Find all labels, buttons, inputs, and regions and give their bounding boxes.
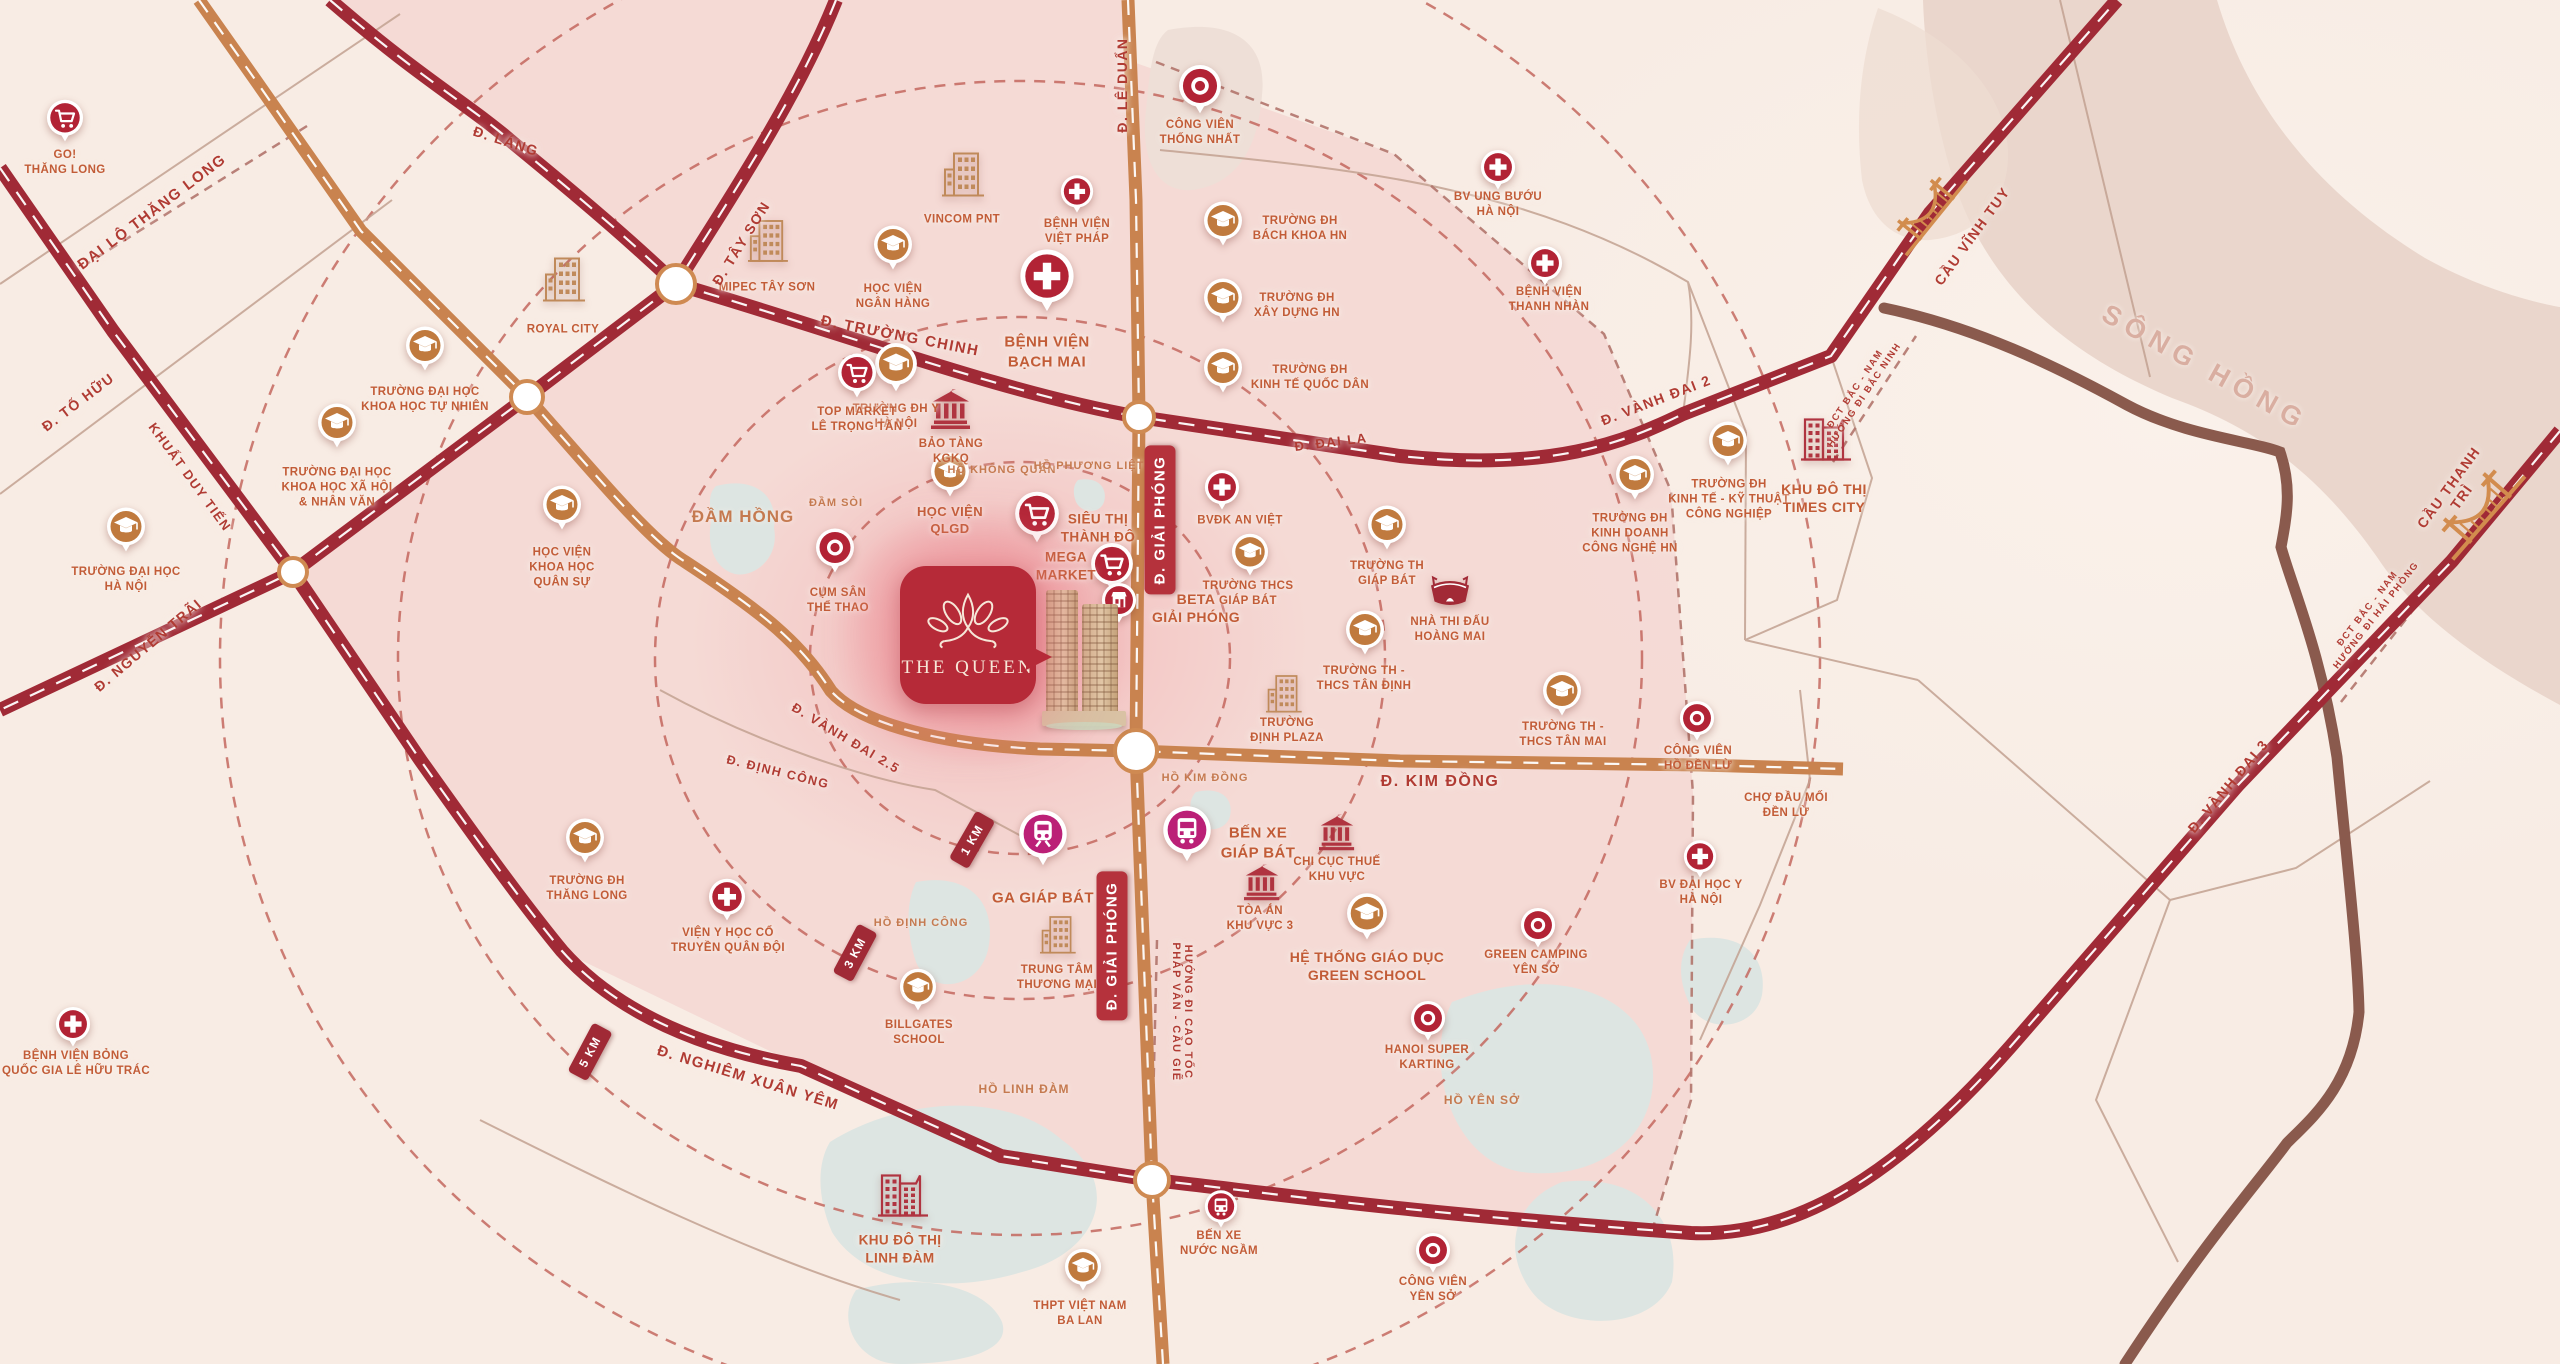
school-icon	[1203, 201, 1243, 247]
khu-do-thi-linh-dam-marker[interactable]	[872, 1166, 932, 1231]
bus-icon	[1162, 805, 1212, 863]
water-label-dam-soi: ĐẦM SÒI	[809, 497, 863, 509]
the-queen-building-render	[1042, 582, 1126, 730]
landscape	[1046, 722, 1122, 730]
truong-dh-kinh-te-quoc-dan-marker[interactable]	[1203, 348, 1243, 399]
truong-thcs-giap-bat-marker[interactable]	[1230, 531, 1270, 582]
truong-th-giap-bat-label: TRƯỜNG TH GIÁP BÁT	[1350, 559, 1424, 589]
water-label-ho-dinh-cong: HỒ ĐỊNH CÔNG	[874, 917, 969, 929]
truong-th-thcs-tan-mai-marker[interactable]	[1542, 671, 1582, 722]
truong-th-thcs-tan-mai-label: TRƯỜNG TH - THCS TÂN MAI	[1519, 720, 1606, 750]
toa-an-khu-vuc-3-marker[interactable]	[1239, 861, 1285, 908]
park-icon	[1415, 1232, 1451, 1273]
school-icon	[1615, 455, 1655, 501]
park-icon	[1178, 64, 1222, 115]
truong-dh-xay-dung-hn-marker[interactable]	[1203, 278, 1243, 329]
benh-vien-bach-mai-marker[interactable]	[1027, 267, 1067, 318]
school-icon	[873, 225, 913, 271]
riverside-road	[1884, 308, 2359, 1364]
train-icon	[1018, 809, 1068, 867]
hospital-icon	[55, 1006, 91, 1047]
truong-dh-kinh-doanh-cong-nghe-hn-marker[interactable]	[1615, 455, 1655, 506]
the-queen-callout[interactable]: THE QUEEN	[900, 566, 1036, 704]
benh-vien-thanh-nhan-label: BỆNH VIỆN THANH NHÀN	[1509, 285, 1590, 315]
hospital-icon	[1060, 174, 1094, 213]
building-icon	[1261, 671, 1305, 719]
ben-xe-giap-bat-label: BẾN XE GIÁP BÁT	[1221, 824, 1296, 863]
citybuilding-icon	[872, 1166, 932, 1226]
road-label-d-kim-dong: Đ. KIM ĐỒNG	[1381, 773, 1500, 791]
cong-vien-ho-den-lu-marker[interactable]	[1677, 696, 1717, 747]
cong-vien-yen-so-marker[interactable]	[1413, 1228, 1453, 1279]
truong-dai-hoc-ha-noi-label: TRƯỜNG ĐẠI HỌC HÀ NỘI	[71, 565, 180, 595]
hospital-icon	[708, 878, 746, 922]
hoc-vien-qlgd-label: HỌC VIỆN QLGD	[917, 504, 983, 538]
bank-icon	[1241, 865, 1282, 903]
project-name: THE QUEEN	[901, 657, 1034, 679]
building-icon	[1035, 912, 1079, 960]
bank-icon	[1316, 815, 1357, 853]
billgates-school-label: BILLGATES SCHOOL	[885, 1018, 953, 1048]
school-icon	[899, 968, 937, 1012]
stadium-icon	[1426, 572, 1474, 612]
chi-cuc-thue-khu-vuc-marker[interactable]	[1314, 811, 1360, 858]
water-label-ho-linh-dam: HỒ LINH ĐÀM	[979, 1082, 1070, 1096]
green-camping-yen-so-marker[interactable]	[1518, 903, 1558, 954]
school-icon	[405, 326, 445, 372]
vincom-pnt-label: VINCOM PNT	[924, 213, 1000, 228]
cum-san-the-thao-marker[interactable]	[815, 528, 855, 579]
bv-dai-hoc-y-ha-noi-marker[interactable]	[1680, 833, 1720, 884]
hanoi-super-karting-marker[interactable]	[1408, 996, 1448, 1047]
truong-dh-bach-khoa-hn-marker[interactable]	[1203, 201, 1243, 252]
busred-icon	[1204, 1189, 1238, 1228]
cong-vien-ho-den-lu-label: CÔNG VIÊN HỒ ĐỀN LỪ	[1664, 744, 1732, 774]
mega-market-label: MEGA MARKET	[1036, 548, 1096, 583]
trung-tam-thuong-mai-label: TRUNG TÂM THƯƠNG MẠI	[1017, 963, 1097, 993]
tower-left	[1046, 590, 1078, 714]
benh-vien-bach-mai-label: BỆNH VIỆN BẠCH MAI	[1004, 333, 1089, 372]
school-icon	[317, 403, 357, 449]
park-icon	[1679, 700, 1715, 741]
cong-vien-thong-nhat-marker[interactable]	[1180, 69, 1220, 120]
hoc-vien-ngan-hang-marker[interactable]	[873, 225, 913, 276]
benh-vien-thanh-nhan-marker[interactable]	[1525, 241, 1565, 292]
water-label-ho-phuong-liet: HỒ PHƯƠNG LIỆT	[1034, 460, 1145, 472]
mipec-tay-son-label: MIPEC TÂY SƠN	[719, 281, 816, 296]
truong-dai-hoc-khoa-hoc-tu-nhien-label: TRƯỜNG ĐẠI HỌC KHOA HỌC TỰ NHIÊN	[361, 385, 489, 415]
hanoi-super-karting-label: HANOI SUPER KARTING	[1385, 1043, 1469, 1073]
school-icon	[1708, 421, 1748, 467]
ben-xe-nuoc-ngam-label: BẾN XE NƯỚC NGẦM	[1180, 1229, 1258, 1259]
truong-dinh-plaza-label: TRƯỜNG ĐỊNH PLAZA	[1250, 716, 1324, 746]
hospital-icon	[1683, 839, 1717, 878]
truong-th-thcs-tan-dinh-marker[interactable]	[1345, 610, 1385, 661]
hospital-icon	[1204, 469, 1240, 510]
truong-dai-hoc-ha-noi-marker[interactable]	[106, 507, 146, 558]
bvdk-an-viet-label: BVĐK AN VIỆT	[1197, 514, 1283, 529]
park-icon	[1410, 1000, 1446, 1041]
ga-giap-bat-label: GA GIÁP BÁT	[992, 888, 1094, 908]
go-thang-long-marker[interactable]	[45, 97, 85, 148]
cart-icon	[837, 353, 877, 399]
sieu-thi-thanh-do-label: SIÊU THỊ THÀNH ĐÔ	[1061, 510, 1135, 545]
cong-vien-thong-nhat-label: CÔNG VIÊN THỐNG NHẤT	[1160, 118, 1241, 148]
nha-thi-dau-hoang-mai-marker[interactable]	[1426, 572, 1474, 617]
vien-y-hoc-co-truyen-quan-doi-label: VIỆN Y HỌC CỔ TRUYỀN QUÂN ĐỘI	[671, 926, 785, 956]
khu-do-thi-times-city-label: KHU ĐÔ THỊ TIMES CITY	[1781, 480, 1867, 516]
benh-vien-bong-quoc-gia-le-huu-trac-marker[interactable]	[53, 1002, 93, 1053]
school-icon	[1542, 671, 1582, 717]
truong-dinh-plaza-marker[interactable]	[1257, 663, 1309, 724]
school-icon	[874, 342, 918, 393]
truong-dh-kinh-te-ky-thuat-cong-nghiep-marker[interactable]	[1708, 421, 1748, 472]
go-thang-long-label: GO! THĂNG LONG	[24, 148, 105, 178]
cum-san-the-thao-label: CỤM SÂN THỂ THAO	[807, 586, 869, 616]
truong-dai-hoc-khoa-hoc-tu-nhien-marker[interactable]	[405, 326, 445, 377]
school-icon	[1203, 278, 1243, 324]
hospital-icon	[1480, 149, 1516, 190]
building-icon	[936, 148, 988, 204]
tower-right	[1082, 604, 1118, 714]
nha-thi-dau-hoang-mai-label: NHÀ THI ĐẤU HOÀNG MAI	[1410, 615, 1489, 645]
truong-dh-kinh-te-ky-thuat-cong-nghiep-label: TRƯỜNG ĐH KINH TẾ - KỸ THUẬT CÔNG NGHIỆP	[1668, 478, 1790, 523]
vien-y-hoc-co-truyen-quan-doi-marker[interactable]	[707, 876, 747, 927]
truong-dh-thang-long-label: TRƯỜNG ĐH THĂNG LONG	[546, 874, 627, 904]
school-icon	[1345, 610, 1385, 656]
bv-dai-hoc-y-ha-noi-label: BV ĐẠI HỌC Y HÀ NỘI	[1659, 878, 1742, 908]
ga-giap-bat-marker[interactable]	[1023, 821, 1063, 872]
school-icon	[1367, 505, 1407, 551]
cart-icon	[1014, 491, 1060, 544]
truong-th-giap-bat-marker[interactable]	[1367, 505, 1407, 556]
benh-vien-viet-phap-label: BỆNH VIỆN VIỆT PHÁP	[1044, 217, 1110, 247]
bv-ung-buou-ha-noi-label: BV UNG BƯỚU HÀ NỘI	[1454, 190, 1542, 220]
hospital-icon	[1527, 245, 1563, 286]
school-icon	[565, 818, 605, 864]
truong-dh-kinh-te-quoc-dan-label: TRƯỜNG ĐH KINH TẾ QUỐC DÂN	[1251, 363, 1369, 393]
thpt-viet-nam-ba-lan-label: THPT VIỆT NAM BA LAN	[1033, 1299, 1126, 1329]
truong-dh-kinh-doanh-cong-nghe-hn-label: TRƯỜNG ĐH KINH DOANH CÔNG NGHỆ HN	[1582, 512, 1678, 557]
he-thong-giao-duc-green-school-marker[interactable]	[1347, 895, 1387, 946]
badge-d-giai-phong[interactable]: Đ. GIẢI PHÓNG	[1097, 872, 1128, 1021]
sieu-thi-thanh-do-marker[interactable]	[1017, 498, 1057, 549]
building-icon	[537, 253, 589, 309]
truong-dh-xay-dung-hn-label: TRƯỜNG ĐH XÂY DỰNG HN	[1254, 291, 1340, 321]
school-icon	[1231, 533, 1269, 577]
truong-th-thcs-tan-dinh-label: TRƯỜNG TH - THCS TÂN ĐỊNH	[1317, 664, 1412, 694]
hospital-icon	[1019, 248, 1075, 312]
top-market-le-trong-tan-marker[interactable]	[837, 353, 877, 404]
school-icon	[1346, 892, 1388, 940]
royal-city-label: ROYAL CITY	[527, 323, 599, 338]
cho-dau-moi-den-lu-label: CHỢ ĐẦU MỐI ĐỀN LỪ	[1744, 791, 1828, 821]
hoc-vien-ngan-hang-label: HỌC VIỆN NGÂN HÀNG	[856, 282, 931, 312]
water-label-dam-hong: ĐẦM HỒNG	[692, 507, 794, 527]
top-market-le-trong-tan-label: TOP MARKET LÊ TRỌNG TẤN	[811, 405, 902, 435]
park-icon	[1520, 907, 1556, 948]
truong-dh-bach-khoa-hn-label: TRƯỜNG ĐH BÁCH KHOA HN	[1253, 214, 1347, 244]
school-icon	[106, 507, 146, 553]
lotus-crown-icon	[922, 591, 1014, 653]
hoc-vien-khoa-hoc-quan-su-marker[interactable]	[542, 485, 582, 536]
truong-thcs-giap-bat-label: TRƯỜNG THCS GIÁP BÁT	[1203, 579, 1294, 609]
vincom-pnt-marker[interactable]	[936, 148, 988, 209]
road-label-d-le-duan: Đ. LÊ DUẨN	[1114, 37, 1130, 132]
truong-dai-hoc-khoa-hoc-xa-hoi-nhan-van-marker[interactable]	[317, 403, 357, 454]
truong-dh-y-ha-noi-marker[interactable]	[876, 347, 916, 398]
billgates-school-marker[interactable]	[898, 966, 938, 1017]
chi-cuc-thue-khu-vuc-label: CHI CỤC THUẾ KHU VỰC	[1293, 855, 1380, 885]
ben-xe-giap-bat-marker[interactable]	[1167, 817, 1207, 868]
toa-an-khu-vuc-3-label: TÒA ÁN KHU VỰC 3	[1227, 904, 1294, 934]
road-label-huong-di-cao-toc-phap-van-cau-gie: HƯỚNG ĐI CAO TỐC PHÁP VÂN - CẦU GIẼ	[1170, 942, 1194, 1081]
truong-dh-thang-long-marker[interactable]	[565, 818, 605, 869]
truong-dai-hoc-khoa-hoc-xa-hoi-nhan-van-label: TRƯỜNG ĐẠI HỌC KHOA HỌC XÃ HỘI & NHÂN VĂ…	[282, 466, 393, 511]
royal-city-marker[interactable]	[537, 253, 589, 314]
benh-vien-viet-phap-marker[interactable]	[1057, 168, 1097, 219]
he-thong-giao-duc-green-school-label: HỆ THỐNG GIÁO DỤC GREEN SCHOOL	[1290, 948, 1445, 984]
green-camping-yen-so-label: GREEN CAMPING YÊN SỞ	[1484, 948, 1588, 978]
school-icon	[542, 485, 582, 531]
park-icon	[815, 528, 855, 574]
water-label-ho-kim-dong: HỒ KIM ĐỒNG	[1162, 772, 1249, 784]
bvdk-an-viet-marker[interactable]	[1202, 465, 1242, 516]
khu-do-thi-linh-dam-label: KHU ĐÔ THỊ LINH ĐÀM	[859, 1231, 942, 1266]
school-icon	[1064, 1248, 1102, 1292]
school-icon	[1203, 348, 1243, 394]
trung-tam-thuong-mai-marker[interactable]	[1031, 904, 1083, 965]
ben-xe-nuoc-ngam-marker[interactable]	[1201, 1183, 1241, 1234]
hoc-vien-khoa-hoc-quan-su-label: HỌC VIỆN KHOA HỌC QUÂN SỰ	[529, 546, 594, 591]
cong-vien-yen-so-label: CÔNG VIÊN YÊN SỞ	[1399, 1275, 1467, 1305]
bao-tang-kgkq-label: BẢO TÀNG KGKQ	[919, 437, 984, 467]
benh-vien-bong-quoc-gia-le-huu-trac-label: BỆNH VIỆN BỎNG QUỐC GIA LÊ HỮU TRÁC	[2, 1049, 150, 1079]
badge-d-giai-phong[interactable]: Đ. GIẢI PHÓNG	[1145, 446, 1176, 595]
bv-ung-buou-ha-noi-marker[interactable]	[1478, 145, 1518, 196]
thpt-viet-nam-ba-lan-marker[interactable]	[1063, 1246, 1103, 1297]
water-label-ho-yen-so: HỒ YÊN SỞ	[1444, 1093, 1520, 1107]
cart-icon	[46, 99, 84, 143]
map: THE QUEEN	[0, 0, 2560, 1364]
